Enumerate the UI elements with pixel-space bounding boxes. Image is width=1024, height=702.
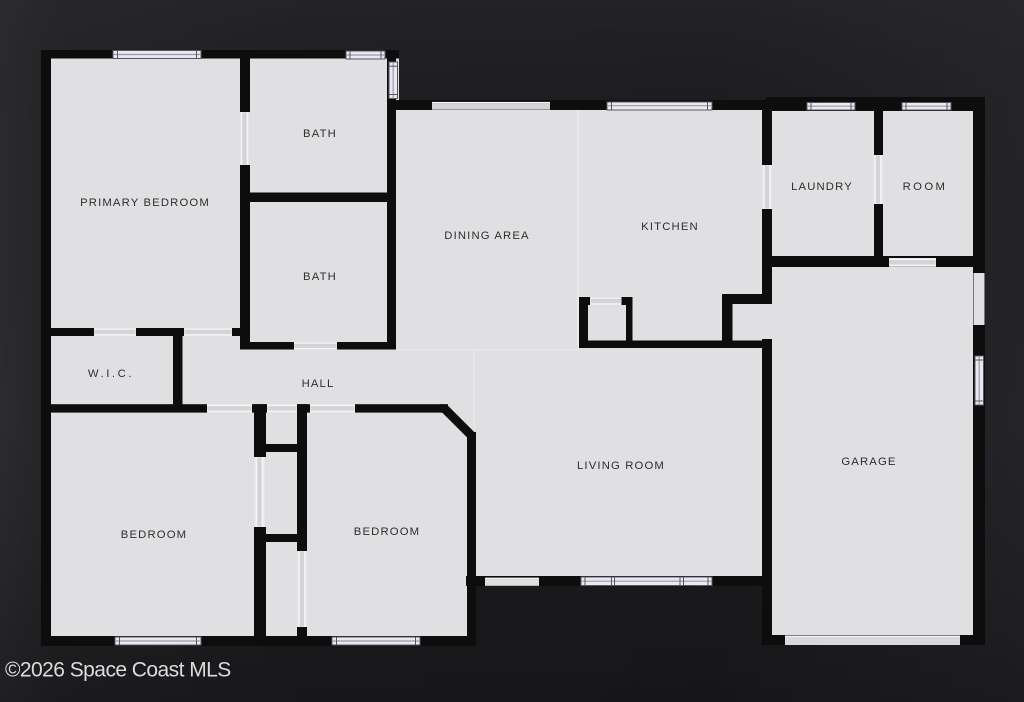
- svg-text:LAUNDRY: LAUNDRY: [791, 181, 853, 193]
- svg-text:PRIMARY BEDROOM: PRIMARY BEDROOM: [80, 197, 210, 209]
- svg-text:HALL: HALL: [302, 378, 335, 390]
- svg-text:DINING AREA: DINING AREA: [444, 230, 529, 242]
- svg-text:©2026 Space Coast MLS: ©2026 Space Coast MLS: [5, 659, 231, 682]
- svg-text:ROOM: ROOM: [903, 181, 948, 193]
- svg-text:GARAGE: GARAGE: [841, 456, 896, 468]
- svg-text:BATH: BATH: [303, 271, 337, 283]
- svg-text:BEDROOM: BEDROOM: [121, 529, 187, 541]
- svg-text:BEDROOM: BEDROOM: [354, 526, 420, 538]
- svg-text:LIVING ROOM: LIVING ROOM: [577, 460, 665, 472]
- svg-text:W.I.C.: W.I.C.: [88, 368, 134, 380]
- svg-text:BATH: BATH: [303, 128, 337, 140]
- svg-text:KITCHEN: KITCHEN: [641, 221, 699, 233]
